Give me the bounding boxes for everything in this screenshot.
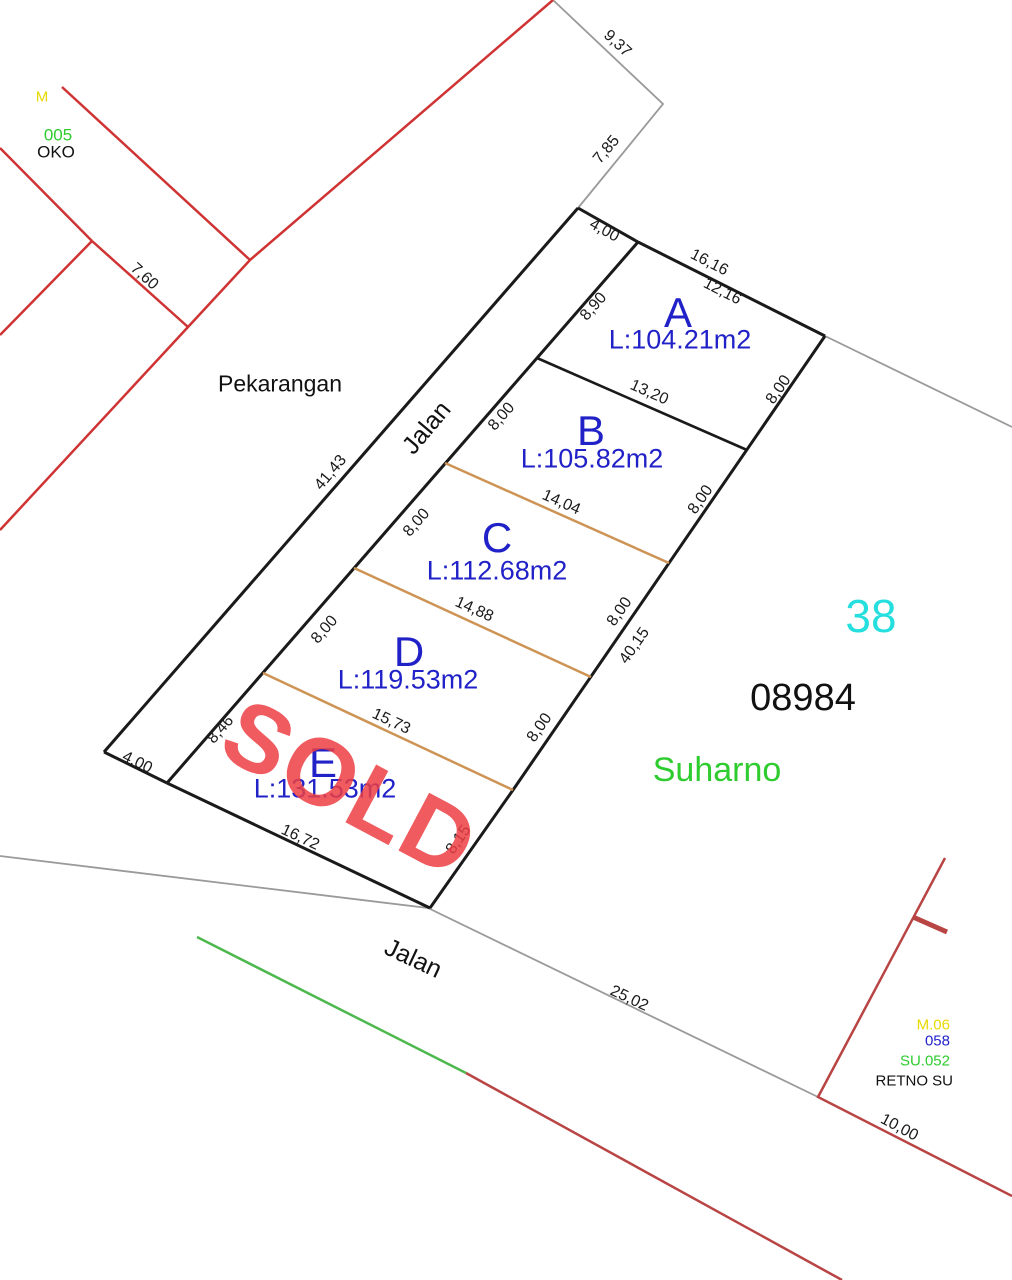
owner-name: Suharno — [653, 753, 782, 787]
lot-a-area: L:104.21m2 — [609, 327, 752, 354]
divider-b-c — [445, 463, 669, 563]
neighbor-se-code-blue: 058 — [925, 1034, 950, 1049]
block-number: 38 — [845, 593, 896, 639]
neighbor-nw-name: OKO — [37, 144, 75, 161]
neighbor-se-name: RETNO SU — [875, 1074, 953, 1089]
road-south-upper-line — [0, 856, 818, 1097]
neighbor-se-code-yellow: M.06 — [917, 1018, 950, 1033]
site-plan-canvas: 9,37 7,85 7,60 4,00 16,16 12,16 8,90 8,0… — [0, 0, 1012, 1280]
lot-c-area: L:112.68m2 — [427, 558, 568, 585]
red-boundary-southeast — [818, 858, 1012, 1196]
red-boundary-northwest-main — [0, 0, 553, 530]
neighbor-nw-code: 005 — [44, 127, 72, 144]
neighbor-nw-yellow-fragment: M — [36, 90, 49, 105]
area-label-pekarangan: Pekarangan — [218, 373, 342, 396]
road-south-lower-line-red — [466, 1073, 842, 1280]
red-boundary-branch-3 — [0, 241, 92, 335]
red-boundary-branch-1 — [62, 87, 250, 260]
sheet-number: 08984 — [750, 679, 856, 717]
lot-c-letter: C — [482, 517, 512, 559]
red-boundary-branch-2 — [0, 148, 92, 241]
divider-a-b — [537, 358, 747, 450]
neighbor-se-code-green: SU.052 — [900, 1054, 950, 1069]
lot-b-area: L:105.82m2 — [521, 446, 664, 473]
lot-d-area: L:119.53m2 — [338, 667, 479, 694]
red-boundary-stub — [913, 917, 947, 932]
boundary-extension-east — [825, 336, 1012, 427]
